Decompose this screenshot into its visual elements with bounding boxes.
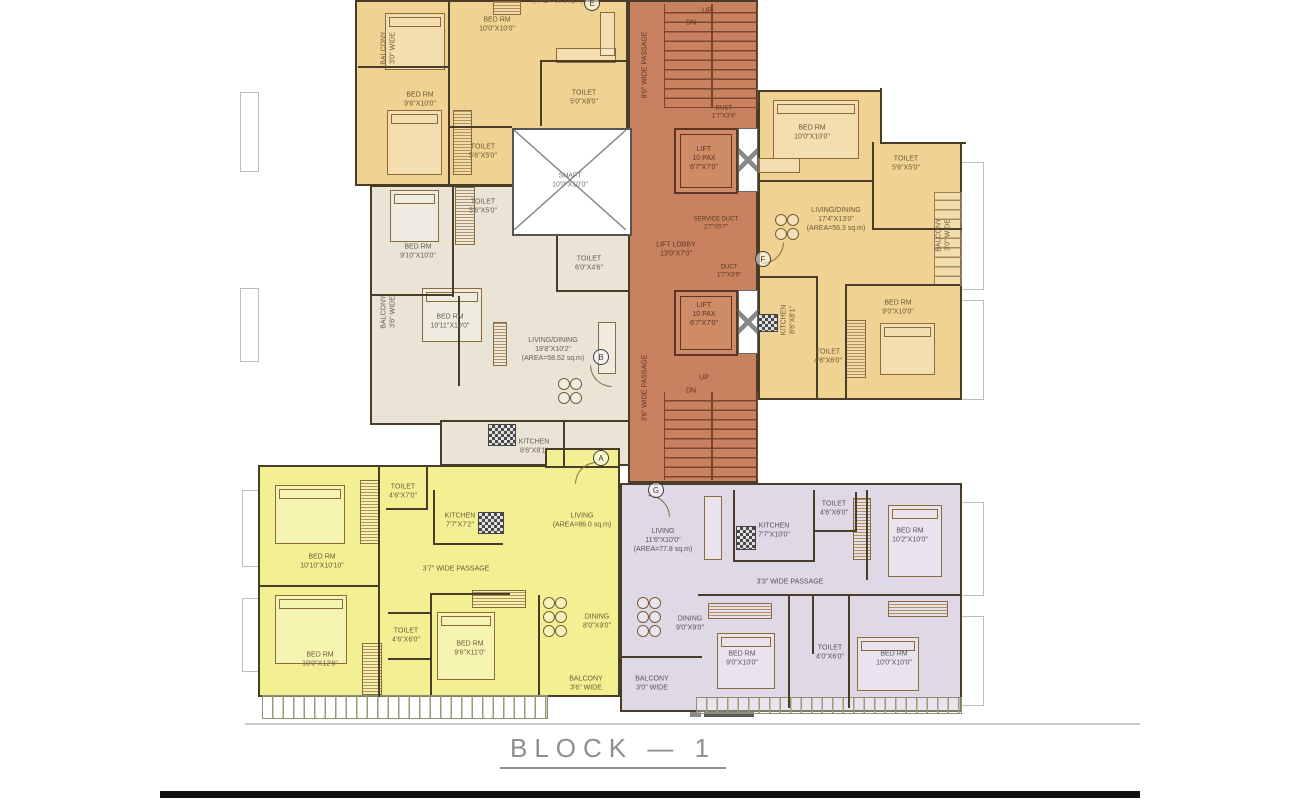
- wall: [812, 596, 814, 654]
- balcony-projection: [240, 288, 259, 362]
- dining-set: [543, 597, 565, 637]
- bed: [773, 100, 859, 159]
- wall: [815, 530, 857, 532]
- balcony-rail: [934, 192, 962, 286]
- dining-set: [775, 214, 797, 240]
- bed: [888, 505, 942, 577]
- sofa: [704, 496, 722, 560]
- wall: [430, 593, 510, 595]
- stove: [758, 314, 778, 332]
- bed: [437, 612, 495, 680]
- wardrobe: [453, 110, 472, 175]
- wardrobe: [360, 480, 380, 544]
- circled-marker-g: G: [648, 482, 664, 498]
- unit-top-right-notch: [880, 88, 966, 144]
- wall: [433, 490, 435, 545]
- wall: [855, 492, 857, 532]
- wall: [433, 543, 503, 545]
- wall: [386, 508, 428, 510]
- circled-marker-f: F: [755, 251, 771, 267]
- wall: [788, 596, 790, 708]
- wall: [866, 490, 868, 580]
- sofa: [758, 158, 800, 173]
- balcony-projection: [240, 92, 259, 172]
- wall: [452, 185, 454, 297]
- wardrobe: [493, 322, 507, 366]
- wall: [872, 142, 874, 230]
- dining-set: [558, 378, 580, 404]
- wall: [378, 587, 380, 697]
- wall: [448, 126, 512, 128]
- bed: [275, 595, 347, 664]
- bed: [387, 110, 442, 175]
- lift-duct-icon: [738, 128, 758, 192]
- wall: [388, 658, 430, 660]
- balcony-rail: [696, 697, 962, 714]
- wall: [733, 490, 735, 562]
- stove: [478, 512, 504, 534]
- wall: [813, 490, 815, 562]
- lift-2: [674, 290, 738, 356]
- wall: [556, 290, 628, 292]
- shaft: [512, 128, 632, 236]
- wall: [540, 60, 542, 126]
- bed: [275, 485, 345, 544]
- wall: [872, 228, 962, 230]
- wall: [540, 60, 628, 62]
- stove: [488, 424, 516, 446]
- wall: [448, 0, 450, 128]
- wall: [430, 595, 432, 695]
- wall: [563, 420, 565, 466]
- balcony-rail: [262, 695, 548, 719]
- lift-duct-icon: [738, 290, 758, 354]
- wall: [758, 276, 818, 278]
- wardrobe: [888, 601, 948, 617]
- bed: [880, 323, 935, 375]
- wall: [258, 585, 378, 587]
- dining-set: [637, 597, 659, 637]
- wall: [538, 595, 540, 695]
- wardrobe: [493, 1, 521, 15]
- wall: [426, 467, 428, 510]
- floor-plan: BED RM 10'0"X10'0" BALCONY 3'0" WIDE BED…: [0, 0, 1300, 800]
- balcony-projection: [960, 162, 984, 290]
- staircase-top: [664, 4, 758, 108]
- bed: [385, 13, 445, 70]
- wall: [848, 596, 850, 708]
- wall: [458, 296, 460, 386]
- circled-marker-b: B: [593, 349, 609, 365]
- balcony-projection: [960, 300, 984, 400]
- bottom-bar: [160, 791, 1140, 798]
- wardrobe: [708, 603, 772, 619]
- wall: [448, 128, 450, 186]
- bed: [857, 637, 919, 691]
- sofa: [600, 12, 615, 56]
- wall: [622, 656, 702, 658]
- wall: [845, 284, 960, 286]
- wall: [358, 66, 450, 68]
- wardrobe: [455, 187, 475, 245]
- circled-marker-a: A: [593, 450, 609, 466]
- ground-line: [245, 723, 1140, 725]
- wall: [698, 594, 960, 596]
- wall: [733, 560, 815, 562]
- bed: [390, 190, 439, 242]
- wall: [845, 284, 847, 400]
- wall: [378, 467, 380, 589]
- lift-1: [674, 128, 738, 194]
- wall: [372, 294, 452, 296]
- wall: [556, 236, 558, 292]
- staircase-bottom: [664, 392, 758, 480]
- bed: [717, 633, 775, 689]
- wall: [758, 180, 872, 182]
- wall: [816, 276, 818, 400]
- wall: [388, 612, 430, 614]
- wardrobe: [846, 320, 866, 378]
- stove: [736, 526, 756, 550]
- block-title: BLOCK — 1: [500, 733, 726, 769]
